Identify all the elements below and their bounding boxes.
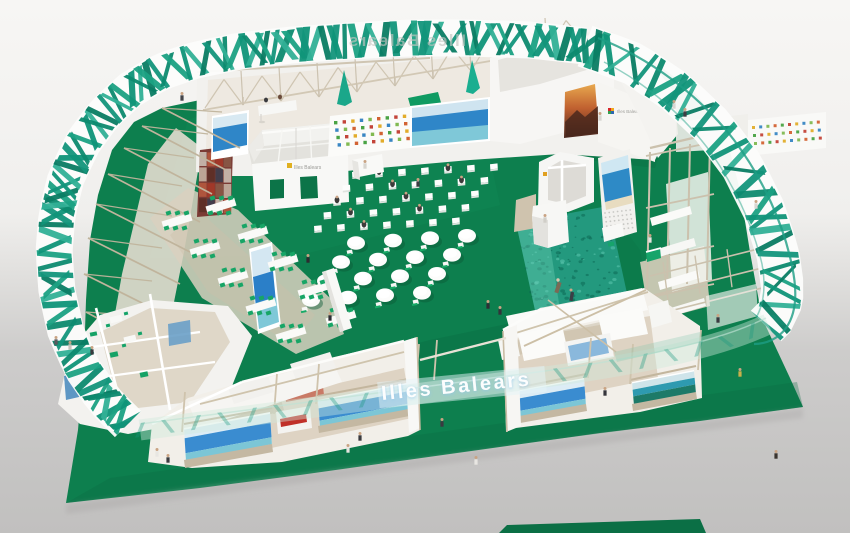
svg-text:Illes Balears: Illes Balears (347, 31, 466, 50)
svg-text:Illes Balears: Illes Balears (294, 165, 322, 171)
